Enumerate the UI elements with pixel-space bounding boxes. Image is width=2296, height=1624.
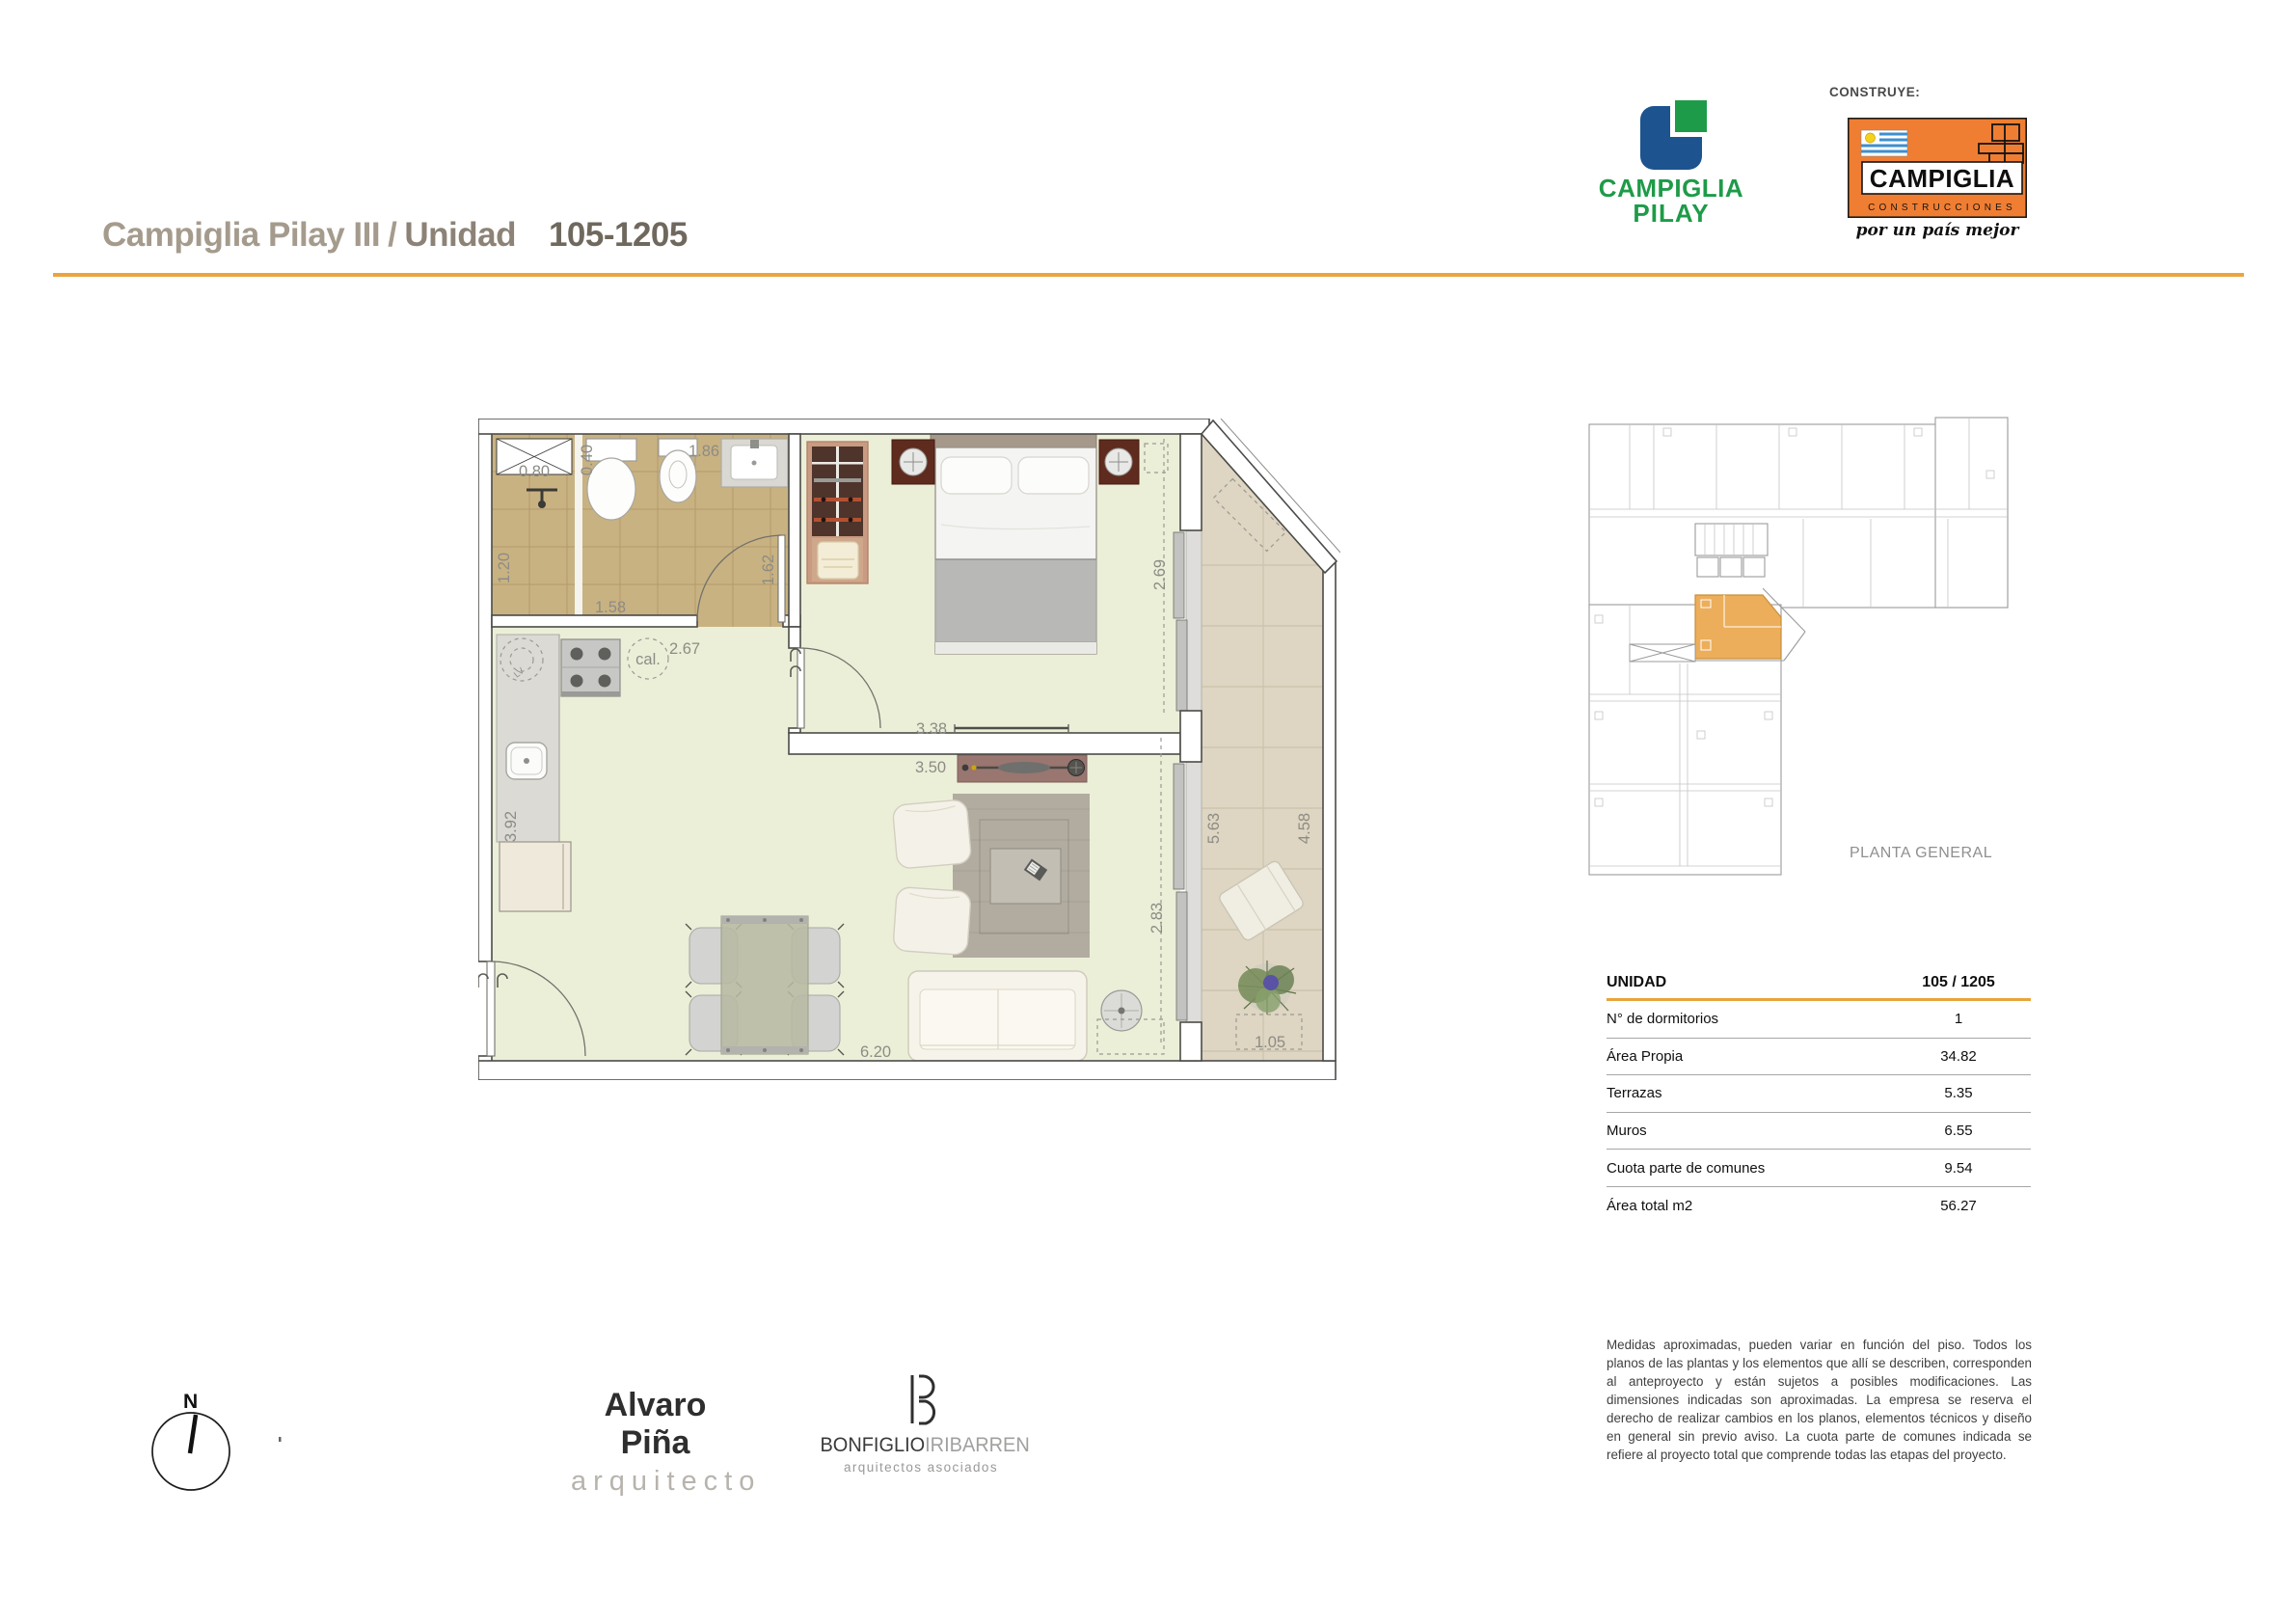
armchair <box>893 886 971 955</box>
overview-plan <box>1572 413 2025 876</box>
sliding-door <box>1174 762 1202 1022</box>
svg-text:2.83: 2.83 <box>1148 903 1166 934</box>
campiglia-construcciones-logo: CAMPIGLIA CONSTRUCCIONES <box>1848 118 2027 218</box>
campiglia-pilay-logo: CAMPIGLIA PILAY <box>1586 93 1756 226</box>
dining-table <box>721 916 808 1054</box>
pilay-logo-icon <box>1608 93 1734 172</box>
ramp <box>1630 644 1695 662</box>
table-title-value: 105 / 1205 <box>1886 974 2031 991</box>
overview-caption: PLANTA GENERAL <box>1850 845 1992 862</box>
svg-text:1.86: 1.86 <box>689 443 719 460</box>
svg-text:3.92: 3.92 <box>502 811 520 842</box>
disclaimer-text: Medidas aproximadas, pueden variar en fu… <box>1607 1336 2032 1464</box>
construcciones-name: CAMPIGLIA <box>1870 164 2014 193</box>
svg-text:6.20: 6.20 <box>860 1043 891 1061</box>
svg-text:1.58: 1.58 <box>595 599 626 616</box>
svg-text:1.05: 1.05 <box>1255 1034 1285 1051</box>
unit-word: Unidad <box>404 216 516 254</box>
project-name: Campiglia Pilay III <box>102 216 380 254</box>
stair-core <box>1695 524 1768 577</box>
wardrobe <box>807 442 868 583</box>
svg-text:5.63: 5.63 <box>1205 813 1223 844</box>
plan-sheet: Campiglia Pilay III/Unidad105-1205 CAMPI… <box>0 0 2296 1624</box>
table-row: Cuota parte de comunes 9.54 <box>1607 1150 2031 1187</box>
page-title: Campiglia Pilay III/Unidad105-1205 <box>102 216 688 255</box>
svg-text:0.80: 0.80 <box>519 463 550 480</box>
svg-text:4.58: 4.58 <box>1296 813 1313 844</box>
kitchen-sink <box>506 743 547 779</box>
table-row: Área Propia 34.82 <box>1607 1039 2031 1076</box>
floor-lamp <box>1101 990 1142 1031</box>
studio-subtitle: arquitectos asociados <box>815 1460 1027 1475</box>
unit-table: UNIDAD 105 / 1205 N° de dormitorios 1 Ár… <box>1607 966 2031 1225</box>
svg-text:1.62: 1.62 <box>760 555 777 585</box>
table-row: Área total m2 56.27 <box>1607 1187 2031 1225</box>
table-title: UNIDAD <box>1607 974 1886 991</box>
nightstand-left <box>892 440 934 484</box>
bed <box>931 434 1096 654</box>
pilay-logo-line1: CAMPIGLIA <box>1586 176 1756 201</box>
unit-code: 105-1205 <box>549 216 688 254</box>
header-rule <box>53 273 2244 277</box>
bedroom-window <box>1174 530 1202 711</box>
studio-signature: BONFIGLIOIRIBARREN arquitectos asociados <box>815 1373 1027 1475</box>
highlighted-unit <box>1695 595 1781 659</box>
svg-text:2.67: 2.67 <box>669 640 700 658</box>
architect-signature: Alvaro Piña arquitecto <box>571 1387 740 1498</box>
construye-label: CONSTRUYE: <box>1829 85 1920 99</box>
armchair <box>892 799 971 869</box>
kitchen-counter <box>497 635 559 842</box>
stove <box>561 639 620 696</box>
floor-plan: LV cal. <box>478 419 1340 1080</box>
svg-text:2.69: 2.69 <box>1151 559 1169 590</box>
table-row: N° de dormitorios 1 <box>1607 1001 2031 1039</box>
title-separator: / <box>380 216 404 254</box>
uruguay-flag-icon <box>1861 130 1907 156</box>
fridge <box>500 842 571 911</box>
studio-monogram-icon <box>905 1373 936 1425</box>
svg-text:1.20: 1.20 <box>496 553 513 583</box>
bathroom-sink <box>721 439 788 487</box>
pilay-logo-line2: PILAY <box>1586 201 1756 226</box>
table-row: Terrazas 5.35 <box>1607 1075 2031 1113</box>
sofa <box>908 971 1087 1061</box>
coffee-table <box>990 849 1061 904</box>
table-header: UNIDAD 105 / 1205 <box>1607 966 2031 1001</box>
construcciones-tagline: por un país mejor <box>1848 221 2027 240</box>
construcciones-sub: CONSTRUCCIONES <box>1868 203 2016 213</box>
north-compass-icon: N <box>135 1377 299 1512</box>
studio-name: BONFIGLIOIRIBARREN <box>821 1434 1022 1457</box>
north-label: N <box>183 1391 198 1413</box>
architect-title: arquitecto <box>571 1466 740 1498</box>
water-heater-label: cal. <box>635 651 661 668</box>
architect-name: Alvaro Piña <box>571 1387 740 1462</box>
svg-text:3.50: 3.50 <box>915 759 946 776</box>
svg-text:3.38: 3.38 <box>916 720 947 738</box>
tv-console <box>958 755 1087 782</box>
table-row: Muros 6.55 <box>1607 1113 2031 1150</box>
svg-text:0.40: 0.40 <box>579 445 596 475</box>
